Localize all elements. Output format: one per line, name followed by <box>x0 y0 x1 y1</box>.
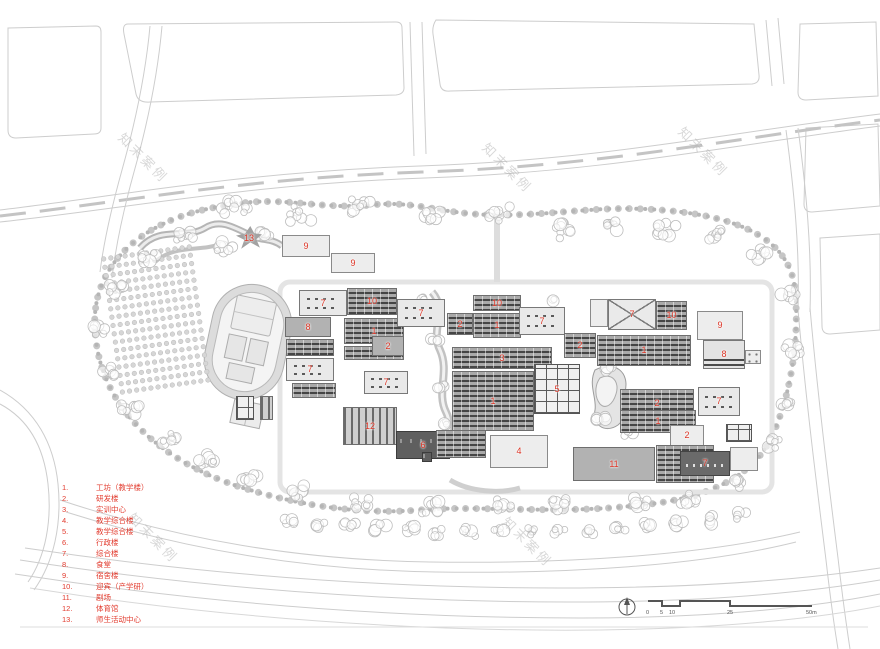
building-label: 7 <box>300 291 346 315</box>
building-1: 1 <box>597 335 691 366</box>
building-2: 2 <box>447 313 473 335</box>
building-label: 7 <box>681 452 729 475</box>
building-7: 7 <box>608 299 656 330</box>
scale-tick-label: 25 <box>727 610 733 616</box>
building-7: 7 <box>698 387 740 416</box>
building-7: 7 <box>519 307 565 335</box>
building-10: 10 <box>473 295 521 311</box>
legend-item-label: 实训中心 <box>84 504 126 515</box>
building <box>726 424 752 442</box>
building-label: 10 <box>657 302 686 329</box>
scale-tick-label: 50m <box>806 610 817 616</box>
building-label: 7 <box>365 372 407 393</box>
building <box>730 447 758 471</box>
building <box>286 339 334 356</box>
legend-item-number: 6. <box>62 538 84 547</box>
legend-item-label: 教学综合楼 <box>84 515 134 526</box>
building-10: 10 <box>347 288 397 315</box>
building-13: 13 <box>236 226 262 250</box>
building <box>436 430 486 458</box>
legend-item-label: 综合楼 <box>84 548 119 559</box>
building-7: 7 <box>299 290 347 316</box>
building-5: 5 <box>534 364 580 414</box>
building-label: 9 <box>283 236 329 256</box>
legend-item: 11.剧场 <box>62 592 149 603</box>
scale-tick-label: 5 <box>660 610 663 616</box>
legend-item-number: 3. <box>62 505 84 514</box>
building <box>260 396 273 420</box>
building-2: 2 <box>372 336 404 356</box>
building-label: 7 <box>398 300 444 326</box>
building-10: 10 <box>656 301 687 330</box>
building-label: 1 <box>453 372 533 430</box>
scale-tick-label: 10 <box>669 610 675 616</box>
building <box>236 396 254 420</box>
building-label: 8 <box>286 318 330 336</box>
building-2: 2 <box>670 425 704 446</box>
building-label: 1 <box>474 314 520 337</box>
building-label: 9 <box>698 312 742 339</box>
legend-item: 4.教学综合楼 <box>62 515 149 526</box>
legend-item-number: 10. <box>62 582 84 591</box>
building-label: 4 <box>491 436 547 467</box>
legend-item-label: 剧场 <box>84 592 111 603</box>
legend-item-number: 2. <box>62 494 84 503</box>
building-label: 2 <box>373 337 403 355</box>
legend-item-number: 8. <box>62 560 84 569</box>
building-9: 9 <box>697 311 743 340</box>
building-1: 1 <box>452 371 534 431</box>
building-label: 2 <box>448 314 472 334</box>
building-label: 12 <box>344 408 396 444</box>
building-7: 7 <box>286 358 334 381</box>
legend-item: 2.研发楼 <box>62 493 149 504</box>
building-9: 9 <box>282 235 330 257</box>
legend-item-number: 9. <box>62 571 84 580</box>
scale-tick-label: 0 <box>646 610 649 616</box>
scale-bar-labels: 05102550m <box>0 610 880 620</box>
building <box>422 452 432 462</box>
legend-item-number: 4. <box>62 516 84 525</box>
building-label: 1 <box>598 336 690 365</box>
legend-item-number: 5. <box>62 527 84 536</box>
legend-item-label: 迎宾（产学研） <box>84 581 149 592</box>
building-label: 5 <box>535 365 579 413</box>
building-label: 7 <box>520 308 564 334</box>
legend: 1.工坊（教学楼）2.研发楼3.实训中心4.教学综合楼5.教学综合楼6.行政楼7… <box>62 482 149 625</box>
building-4: 4 <box>490 435 548 468</box>
legend-item-number: 1. <box>62 483 84 492</box>
site-plan-sheet: { "sheet": {"background": "#ffffff"}, "w… <box>0 0 880 649</box>
legend-item-label: 教学综合楼 <box>84 526 134 537</box>
legend-item: 1.工坊（教学楼） <box>62 482 149 493</box>
building-8: 8 <box>703 340 745 369</box>
building-12: 12 <box>343 407 397 445</box>
building-label: 11 <box>574 448 654 480</box>
legend-item: 8.食堂 <box>62 559 149 570</box>
building <box>292 383 336 398</box>
legend-item: 6.行政楼 <box>62 537 149 548</box>
building-label: 8 <box>704 341 744 368</box>
building <box>590 299 608 327</box>
building-2: 2 <box>564 333 596 358</box>
building-label: 10 <box>474 296 520 310</box>
building-label: 10 <box>348 289 396 314</box>
building-label: 13 <box>236 226 262 250</box>
building-9: 9 <box>331 253 375 273</box>
building-label: 9 <box>332 254 374 272</box>
building-7: 7 <box>364 371 408 394</box>
legend-item-label: 研发楼 <box>84 493 119 504</box>
building-7: 7 <box>680 451 730 476</box>
legend-item-number: 7. <box>62 549 84 558</box>
building-label: 2 <box>565 334 595 357</box>
building-7: 7 <box>397 299 445 327</box>
legend-item-label: 宿舍楼 <box>84 570 119 581</box>
building-label: 7 <box>287 359 333 380</box>
legend-item: 10.迎宾（产学研） <box>62 581 149 592</box>
legend-item-number: 11. <box>62 593 84 602</box>
building-1: 1 <box>473 313 521 338</box>
legend-item: 3.实训中心 <box>62 504 149 515</box>
legend-item-label: 行政楼 <box>84 537 119 548</box>
legend-item: 5.教学综合楼 <box>62 526 149 537</box>
building-label: 7 <box>609 300 655 329</box>
legend-item: 9.宿舍楼 <box>62 570 149 581</box>
building-label: 2 <box>671 426 703 445</box>
legend-item: 7.综合楼 <box>62 548 149 559</box>
legend-item-label: 食堂 <box>84 559 111 570</box>
building-11: 11 <box>573 447 655 481</box>
legend-item-label: 工坊（教学楼） <box>84 482 149 493</box>
building-8: 8 <box>285 317 331 337</box>
building <box>745 350 761 364</box>
building-label: 7 <box>699 388 739 415</box>
